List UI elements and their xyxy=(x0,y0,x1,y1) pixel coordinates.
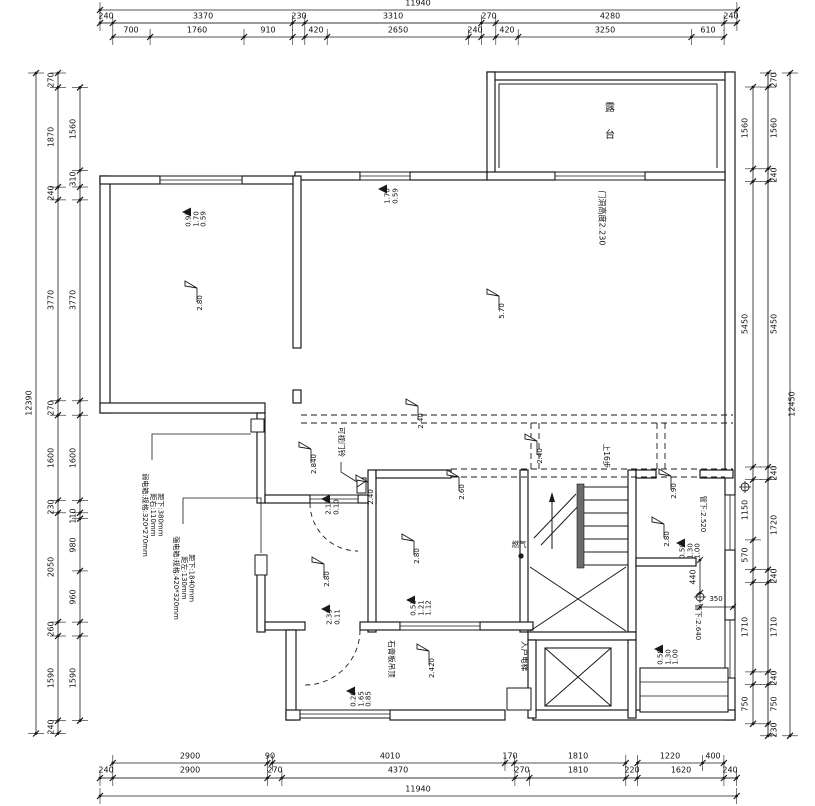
floor-plan-canvas xyxy=(0,0,815,806)
plan-geometry xyxy=(100,72,735,720)
marker-symbols xyxy=(182,185,751,696)
floor-plan-drawing: 1194024033702303310270428024070017609104… xyxy=(0,0,815,806)
